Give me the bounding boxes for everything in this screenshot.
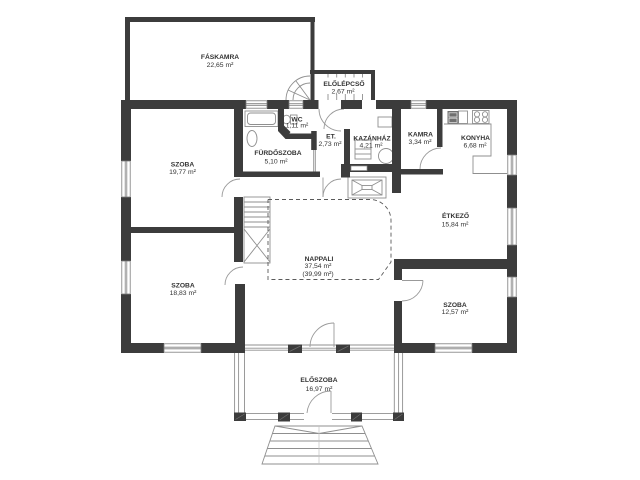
- svg-text:12,57 m²: 12,57 m²: [442, 309, 470, 316]
- svg-text:SZOBA: SZOBA: [443, 302, 467, 309]
- svg-text:SZOBA: SZOBA: [171, 283, 195, 290]
- svg-text:18,83 m²: 18,83 m²: [170, 290, 198, 297]
- svg-text:1,11 m²: 1,11 m²: [286, 122, 309, 129]
- svg-text:22,65 m²: 22,65 m²: [207, 62, 235, 69]
- svg-text:2,67 m²: 2,67 m²: [331, 88, 355, 95]
- svg-text:19,77 m²: 19,77 m²: [169, 169, 197, 176]
- svg-text:KAZÁNHÁZ: KAZÁNHÁZ: [353, 134, 390, 143]
- svg-text:KONYHA: KONYHA: [461, 135, 490, 142]
- svg-text:2,73 m²: 2,73 m²: [318, 141, 342, 148]
- svg-text:4,21 m²: 4,21 m²: [359, 143, 383, 150]
- svg-text:(39,99 m²): (39,99 m²): [302, 271, 333, 278]
- svg-text:NAPPALI: NAPPALI: [305, 256, 334, 263]
- svg-text:SZOBA: SZOBA: [171, 162, 195, 169]
- svg-text:ELŐSZOBA: ELŐSZOBA: [300, 375, 337, 384]
- svg-text:5,10 m²: 5,10 m²: [264, 158, 288, 165]
- svg-text:ET.: ET.: [326, 134, 336, 141]
- svg-text:ÉTKEZŐ: ÉTKEZŐ: [442, 211, 469, 220]
- svg-text:16,97 m²: 16,97 m²: [306, 386, 334, 393]
- svg-text:ELŐLÉPCSŐ: ELŐLÉPCSŐ: [323, 79, 364, 88]
- svg-text:3,34 m²: 3,34 m²: [408, 139, 432, 146]
- svg-text:15,84 m²: 15,84 m²: [442, 221, 470, 228]
- svg-text:FÜRDŐSZOBA: FÜRDŐSZOBA: [254, 148, 301, 157]
- svg-text:FÁSKAMRA: FÁSKAMRA: [201, 52, 239, 61]
- svg-text:6,68 m²: 6,68 m²: [463, 143, 487, 150]
- svg-text:37,54 m²: 37,54 m²: [305, 263, 333, 270]
- svg-text:KAMRA: KAMRA: [408, 132, 433, 139]
